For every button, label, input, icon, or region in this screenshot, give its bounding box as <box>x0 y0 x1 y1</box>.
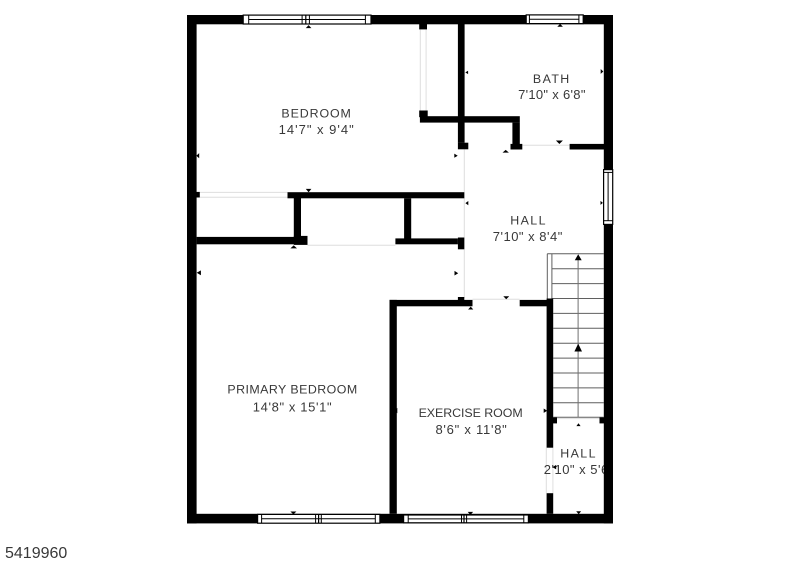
svg-text:14'8" x 15'1": 14'8" x 15'1" <box>253 399 333 414</box>
svg-text:7'10" x 6'8": 7'10" x 6'8" <box>518 87 586 102</box>
svg-text:2'10" x 5'6": 2'10" x 5'6" <box>544 462 614 477</box>
svg-text:7'10" x 8'4": 7'10" x 8'4" <box>493 229 563 244</box>
svg-text:BATH: BATH <box>533 72 571 86</box>
svg-text:5419960: 5419960 <box>5 545 67 562</box>
svg-text:8'6" x 11'8": 8'6" x 11'8" <box>435 422 507 437</box>
svg-text:PRIMARY BEDROOM: PRIMARY BEDROOM <box>227 382 357 396</box>
svg-text:HALL: HALL <box>560 446 597 460</box>
svg-text:14'7" x 9'4": 14'7" x 9'4" <box>279 122 355 137</box>
svg-text:HALL: HALL <box>510 213 547 227</box>
svg-text:BEDROOM: BEDROOM <box>281 107 351 121</box>
svg-text:EXERCISE ROOM: EXERCISE ROOM <box>419 406 523 420</box>
